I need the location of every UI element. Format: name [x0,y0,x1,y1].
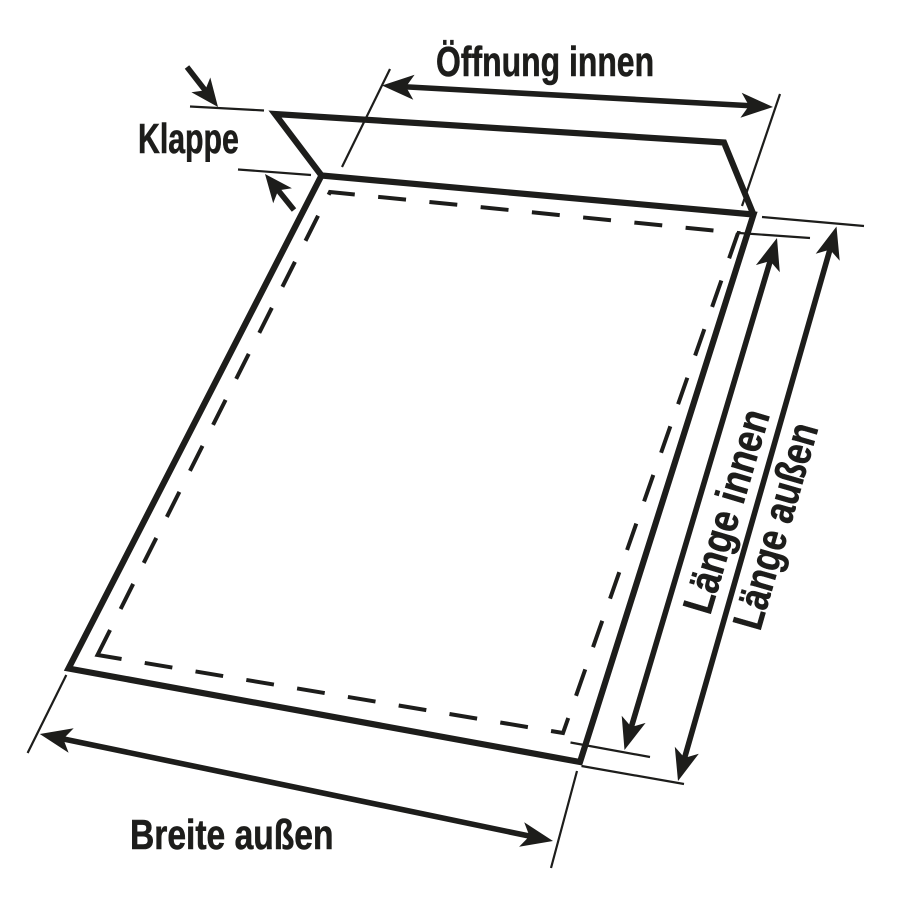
svg-text:Klappe: Klappe [138,115,239,162]
svg-text:Öffnung innen: Öffnung innen [436,38,654,85]
svg-text:Breite außen: Breite außen [130,811,334,858]
